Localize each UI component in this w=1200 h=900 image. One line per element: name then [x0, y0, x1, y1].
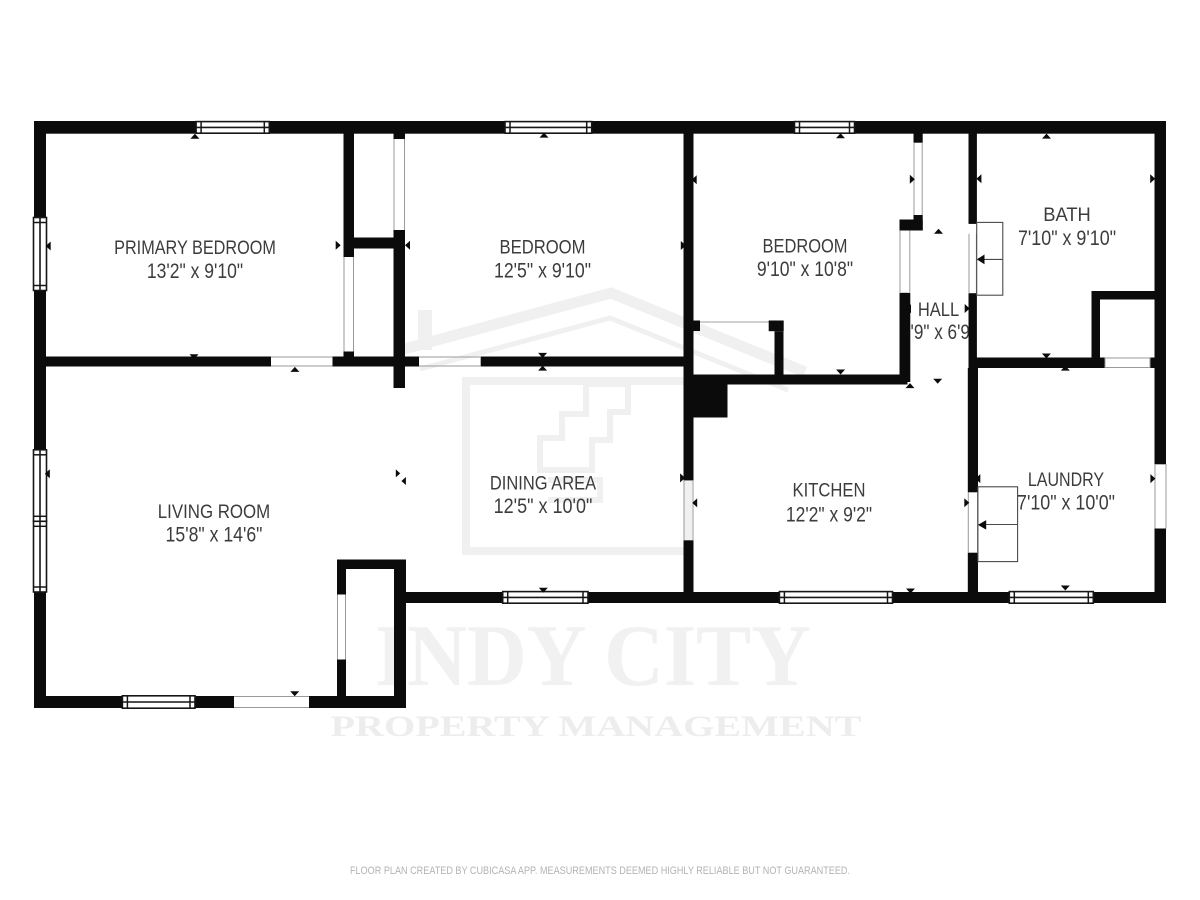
svg-text:LAUNDRY: LAUNDRY — [1028, 470, 1104, 491]
svg-text:FLOOR PLAN CREATED BY CUBICASA: FLOOR PLAN CREATED BY CUBICASA APP. MEAS… — [350, 865, 850, 877]
svg-text:PRIMARY BEDROOM: PRIMARY BEDROOM — [114, 238, 276, 259]
svg-text:DINING AREA: DINING AREA — [490, 474, 596, 495]
svg-text:9'10" x 10'8": 9'10" x 10'8" — [757, 258, 853, 281]
svg-text:HALL: HALL — [918, 300, 959, 321]
svg-text:12'5" x 10'0": 12'5" x 10'0" — [494, 495, 593, 518]
svg-text:12'2" x 9'2": 12'2" x 9'2" — [786, 503, 872, 526]
svg-text:LIVING ROOM: LIVING ROOM — [158, 502, 270, 523]
svg-text:BEDROOM: BEDROOM — [500, 238, 586, 259]
svg-text:KITCHEN: KITCHEN — [793, 481, 866, 502]
svg-text:12'5" x 9'10": 12'5" x 9'10" — [494, 260, 591, 283]
svg-text:7'10" x 9'10": 7'10" x 9'10" — [1018, 227, 1116, 250]
svg-text:BATH: BATH — [1043, 205, 1091, 226]
svg-text:13'2" x 9'10": 13'2" x 9'10" — [147, 260, 243, 283]
svg-text:BEDROOM: BEDROOM — [763, 237, 848, 258]
svg-text:7'9" x 6'9": 7'9" x 6'9" — [901, 321, 976, 344]
svg-text:PROPERTY MANAGEMENT: PROPERTY MANAGEMENT — [331, 710, 862, 743]
svg-text:15'8" x 14'6": 15'8" x 14'6" — [166, 524, 263, 547]
svg-text:7'10" x 10'0": 7'10" x 10'0" — [1017, 492, 1115, 515]
svg-text:INDY CITY: INDY CITY — [375, 608, 811, 705]
